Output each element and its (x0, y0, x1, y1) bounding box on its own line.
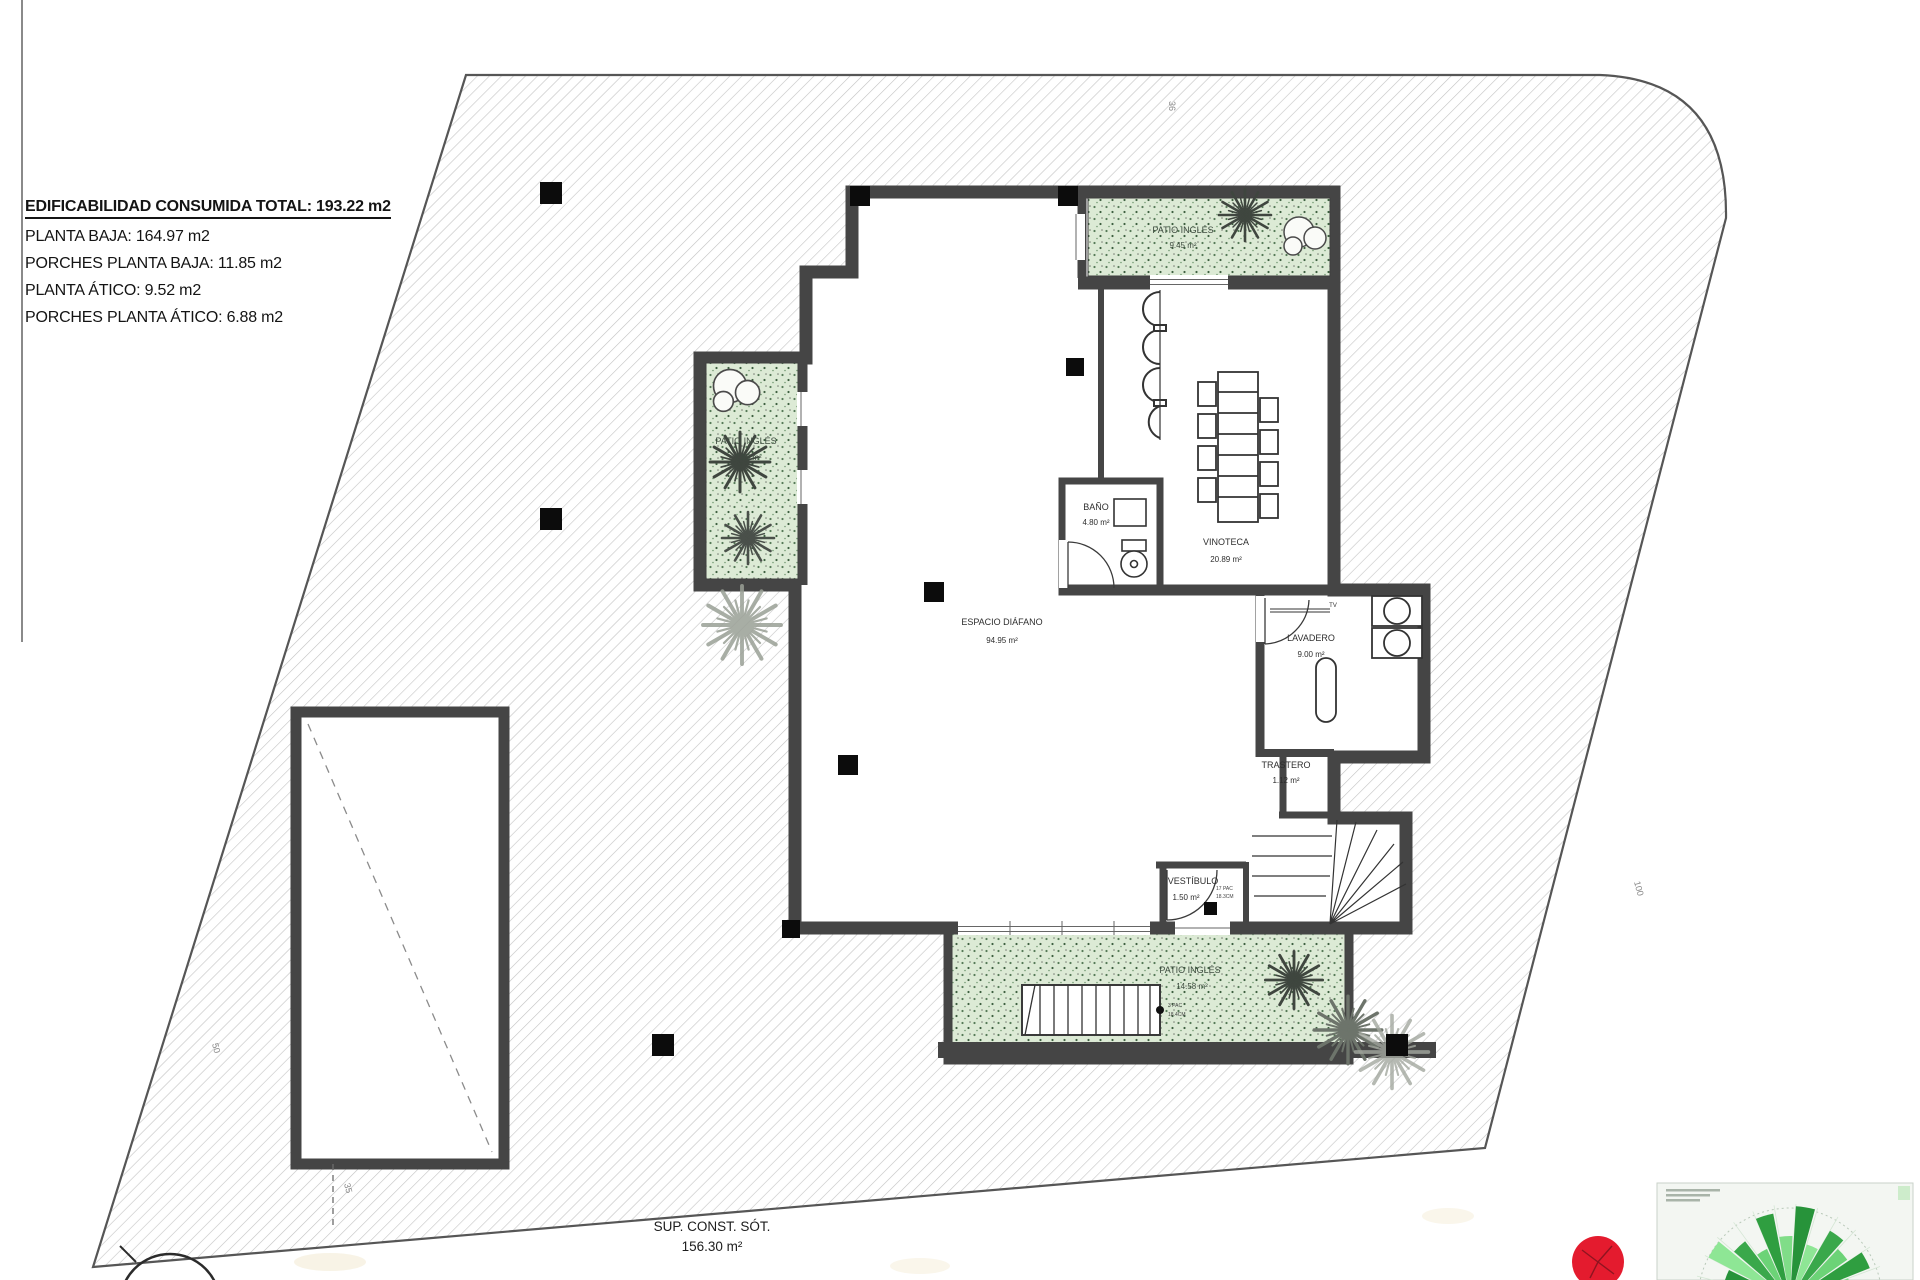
room-area-patio-top: 9.45 m² (1169, 241, 1196, 250)
buildability-line: PLANTA ÁTICO: 9.52 m2 (25, 282, 391, 300)
pool (296, 712, 504, 1228)
stair-note-1b: 18.3CM (1216, 894, 1234, 900)
basement-line2: 156.30 m² (682, 1239, 743, 1254)
room-area-patio-bottom: 14.58 m² (1176, 982, 1208, 991)
buildability-summary: EDIFICABILIDAD CONSUMIDA TOTAL: 193.22 m… (25, 198, 391, 327)
patio-stair (1022, 985, 1164, 1035)
room-label-trastero: TRASTERO (1261, 760, 1310, 770)
windrose-card (1657, 1183, 1913, 1280)
room-area-patio-left: 7.65 m² (734, 453, 761, 462)
card-green-tab (1898, 1186, 1910, 1200)
card-text-line (1666, 1194, 1710, 1197)
tv-label: TV (1329, 603, 1337, 609)
stair-note-2a: 3 PAC (1168, 1003, 1182, 1009)
room-label-vinoteca: VINOTECA (1203, 537, 1249, 547)
room-label-patio-left: PATIO INGLÉS (715, 436, 776, 446)
basement-surface-note: SUP. CONST. SÓT. 156.30 m² (654, 1219, 771, 1254)
buildability-line: PLANTA BAJA: 164.97 m2 (25, 228, 391, 246)
room-label-bano: BAÑO (1083, 502, 1109, 512)
room-label-vestibulo: VESTÍBULO (1168, 876, 1219, 886)
buildability-line: PORCHES PLANTA ÁTICO: 6.88 m2 (25, 309, 391, 327)
dim-right: 100 (1632, 880, 1646, 897)
room-label-lavadero: LAVADERO (1287, 633, 1335, 643)
card-text-line (1666, 1199, 1700, 1202)
buildability-line: PORCHES PLANTA BAJA: 11.85 m2 (25, 255, 391, 273)
room-area-lavadero: 9.00 m² (1297, 650, 1324, 659)
stair-note-2b: 18.4CM (1168, 1012, 1186, 1018)
room-label-patio-top: PATIO INGLÉS (1152, 225, 1213, 235)
dim-top: 36 (1167, 101, 1177, 111)
red-tree-symbol (1572, 1236, 1624, 1280)
basement-line1: SUP. CONST. SÓT. (654, 1219, 771, 1234)
room-label-patio-bottom: PATIO INGLÉS (1159, 965, 1220, 975)
buildability-total: EDIFICABILIDAD CONSUMIDA TOTAL: 193.22 m… (25, 198, 391, 219)
room-area-vestibulo: 1.50 m² (1172, 893, 1199, 902)
room-label-espacio: ESPACIO DIÁFANO (961, 617, 1042, 627)
room-area-espacio: 94.95 m² (986, 636, 1018, 645)
floor-plan-canvas: ESPACIO DIÁFANO 94.95 m² BAÑO 4.80 m² VI… (0, 0, 1920, 1280)
room-area-bano: 4.80 m² (1082, 518, 1109, 527)
card-text-line (1666, 1189, 1720, 1192)
room-area-trastero: 1.12 m² (1272, 776, 1299, 785)
stair-note-1a: 17 PAC (1216, 886, 1233, 892)
room-area-vinoteca: 20.89 m² (1210, 555, 1242, 564)
floor-plan-page: ESPACIO DIÁFANO 94.95 m² BAÑO 4.80 m² VI… (0, 0, 1920, 1280)
